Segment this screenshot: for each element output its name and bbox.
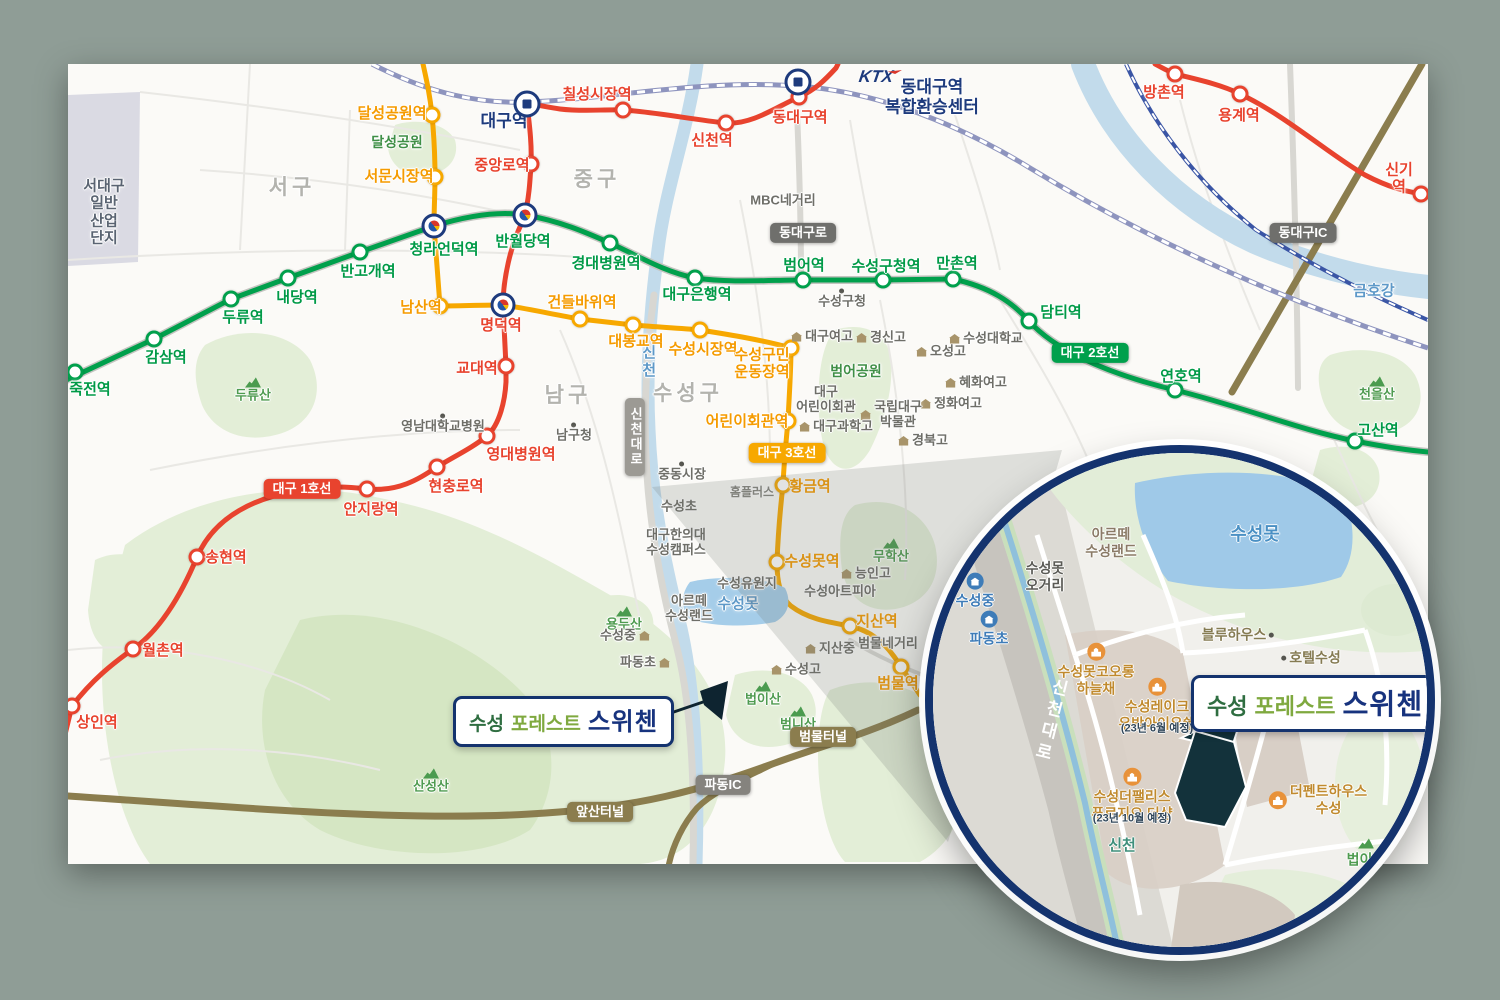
project-name-part3: 스위첸	[1342, 682, 1423, 723]
road-badge: 신천대로	[625, 398, 645, 476]
station-dot	[602, 235, 619, 252]
station-dot	[783, 340, 800, 357]
geumho-river	[1083, 64, 1428, 287]
station-dot	[523, 156, 540, 173]
park-muhak	[840, 502, 937, 610]
donddaegu-ro-road	[797, 112, 801, 278]
road-badge: 대구 2호선	[1052, 343, 1129, 363]
station-dot	[1347, 433, 1364, 450]
station-dot	[1167, 382, 1184, 399]
park-beomeo	[818, 327, 891, 469]
station-dot	[718, 115, 735, 132]
project-name-part3: 스위첸	[588, 703, 658, 738]
station-dot	[572, 311, 589, 328]
road-badge: 파동IC	[696, 775, 751, 795]
station-dot	[775, 477, 792, 494]
industrial-zone	[68, 92, 140, 266]
road-badge: 앞산터널	[567, 802, 633, 822]
station-dot	[692, 322, 709, 339]
road-badge: 동대구로	[770, 223, 836, 243]
station-dot	[1413, 186, 1429, 203]
station-dot	[945, 271, 962, 288]
station-dot	[769, 554, 786, 571]
station-dot	[1021, 313, 1038, 330]
station-dot	[189, 549, 206, 566]
project-name-part2: 포레스트	[1254, 689, 1335, 721]
transfer-station-icon	[513, 203, 538, 228]
road-badge: 범물터널	[790, 727, 856, 747]
magnifier-circle-inset: 수성못아르떼 수성랜드수성못 오거리수성중파동초블루하우스호텔수성수성못코오롱 …	[925, 445, 1435, 955]
station-dot	[1232, 86, 1249, 103]
station-dot	[427, 169, 444, 186]
station-dot	[687, 270, 704, 287]
train-station-icon	[785, 69, 812, 96]
project-name-part2: 포레스트	[511, 709, 581, 736]
project-callout-main: 수성 포레스트 스위첸	[453, 696, 674, 747]
station-dot	[1167, 66, 1184, 83]
ktx-logo: KTX	[858, 67, 895, 87]
project-name-part1: 수성	[1207, 689, 1247, 721]
road-badge: 동대구IC	[1270, 223, 1337, 243]
station-dot	[842, 618, 859, 635]
road-badge: 대구 3호선	[749, 443, 826, 463]
road-badge: 대구 1호선	[264, 479, 341, 499]
station-dot	[146, 331, 163, 348]
station-dot	[625, 317, 642, 334]
station-dot	[875, 272, 892, 289]
station-dot	[780, 413, 797, 430]
project-callout-inset: 수성 포레스트 스위첸	[1191, 675, 1435, 732]
park-dalseong	[388, 122, 456, 176]
project-name-part1: 수성	[469, 709, 504, 736]
station-dot	[795, 272, 812, 289]
suseong-lake-inset	[1135, 473, 1353, 589]
station-dot	[352, 244, 369, 261]
park-duryu	[196, 333, 317, 438]
station-dot	[498, 358, 515, 375]
park-cheoneul	[1319, 350, 1421, 434]
suseong-lake-main	[683, 578, 789, 626]
transfer-station-icon	[422, 214, 447, 239]
page: 서대구 일반 산업 단지서구중구남구수성구달성공원두류산영남대학교병원남구청중동…	[0, 0, 1500, 1000]
train-station-icon	[514, 91, 541, 118]
station-dot	[893, 659, 910, 676]
station-dot	[479, 428, 496, 445]
station-dot	[432, 298, 449, 315]
transfer-station-icon	[491, 293, 516, 318]
station-dot	[424, 107, 441, 124]
station-dot	[615, 102, 632, 119]
station-dot	[429, 459, 446, 476]
station-dot	[359, 481, 376, 498]
station-dot	[223, 291, 240, 308]
station-dot	[125, 641, 142, 658]
station-dot	[280, 270, 297, 287]
